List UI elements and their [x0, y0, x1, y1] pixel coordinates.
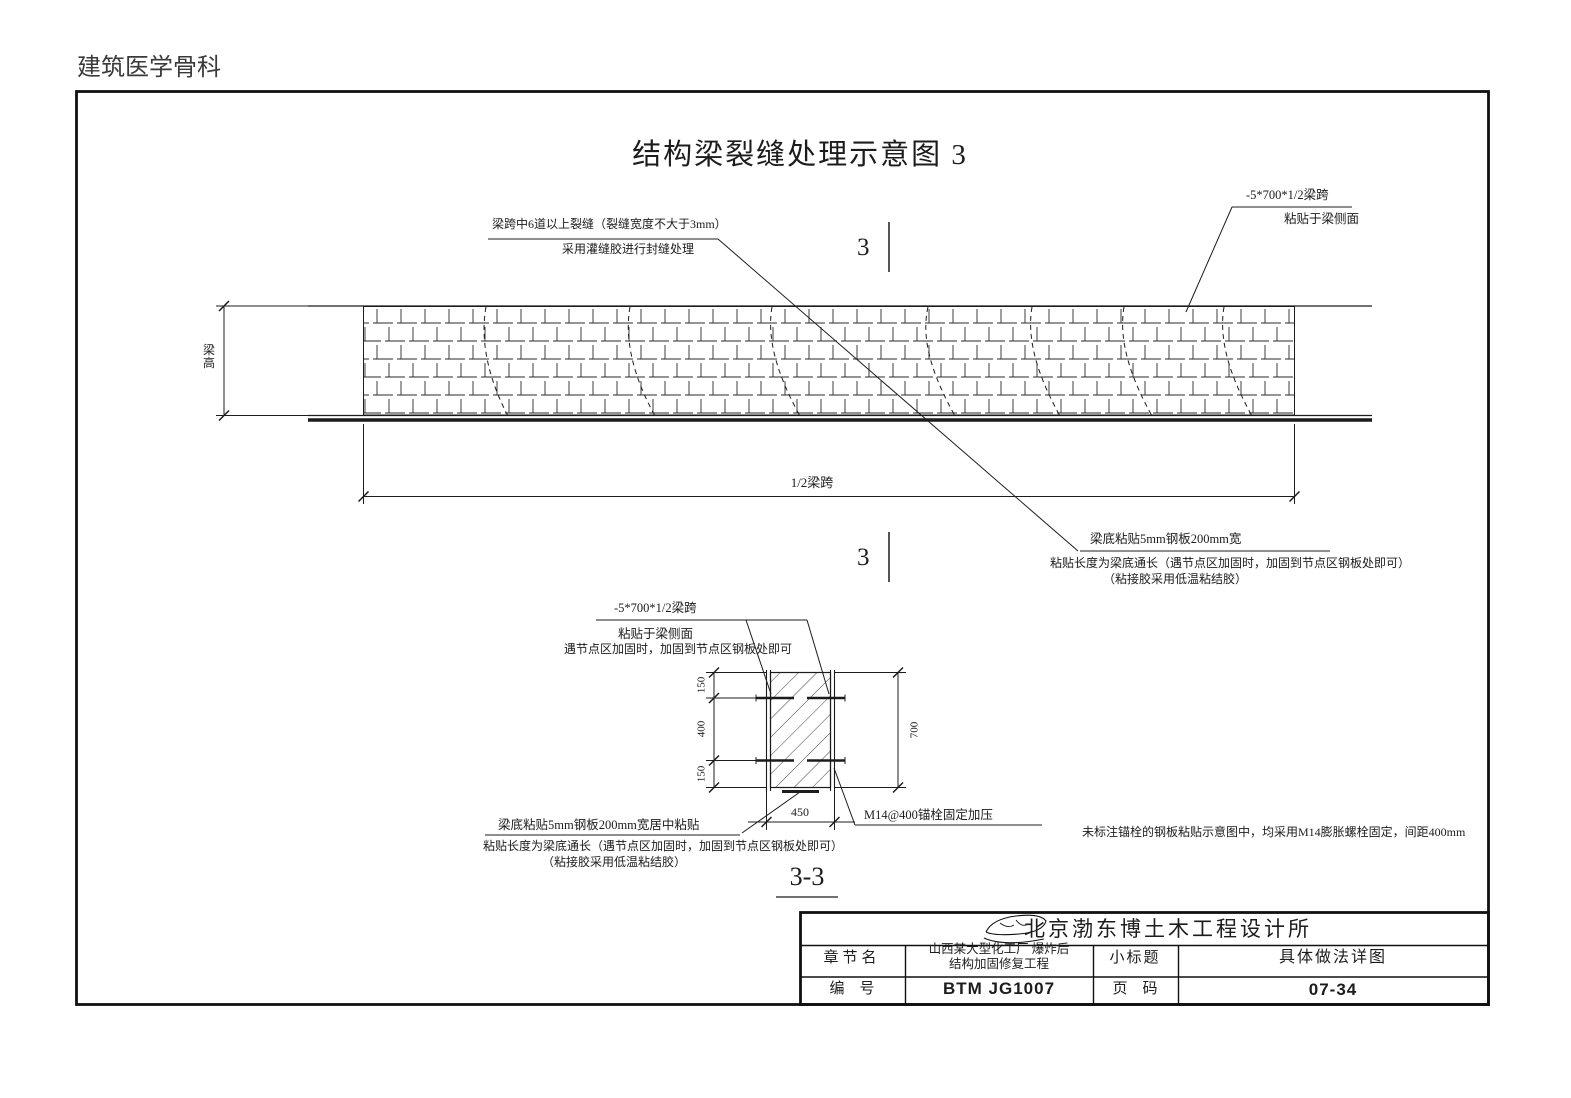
general-note: 未标注锚栓的钢板粘贴示意图中，均采用M14膨胀螺栓固定，间距400mm — [1082, 826, 1465, 840]
section-plate-note-line3: 遇节点区加固时，加固到节点区钢板处即可 — [564, 643, 792, 657]
project-name-line2: 结构加固修复工程 — [949, 957, 1049, 971]
leader-anchor-note — [834, 768, 855, 825]
bottom-plate-note-line1: 梁底粘贴5mm钢板200mm宽 — [1090, 532, 1241, 546]
subtitle-label: 小标题 — [1109, 950, 1160, 967]
dim-beam-height — [216, 301, 360, 421]
beam-grid-face — [364, 307, 1295, 416]
dim-right — [835, 668, 907, 793]
section-bottom-note-line3: （粘接胶采用低温粘结胶） — [542, 856, 686, 870]
anchor-note: M14@400锚栓固定加压 — [864, 808, 993, 822]
page-code: 07-34 — [1309, 980, 1357, 1000]
sheet-border — [77, 92, 1489, 1005]
section-bottom-note-line2: 粘贴长度为梁底通长（遇节点区加固时，加固到节点区钢板处即可） — [483, 840, 843, 854]
bottom-plate-note-line3: （粘接胶采用低温粘结胶） — [1103, 573, 1247, 587]
section-plate-note-line1: -5*700*1/2梁跨 — [614, 601, 697, 615]
leader-side-plate-note — [1186, 207, 1232, 312]
number-label: 编 号 — [829, 981, 874, 998]
page-label: 页 码 — [1112, 981, 1157, 998]
side-plate-note-line1: -5*700*1/2梁跨 — [1246, 188, 1329, 202]
side-plate-note-line2: 粘贴于梁侧面 — [1284, 212, 1359, 226]
section-mark-bottom: 3 — [857, 544, 870, 573]
section-label: 3-3 — [790, 862, 825, 892]
half-span-label: 1/2梁跨 — [791, 476, 834, 491]
dim-400: 400 — [696, 721, 709, 738]
dim-700: 700 — [909, 722, 922, 739]
project-name-line1: 山西某大型化工厂 爆炸后 — [929, 942, 1070, 956]
subtitle-value: 具体做法详图 — [1279, 949, 1387, 967]
beam-elevation — [216, 207, 1372, 582]
chapter-label: 章节名 — [823, 950, 880, 967]
dim-left — [706, 668, 766, 793]
dim-half-span — [359, 424, 1300, 504]
section-mark-top: 3 — [857, 234, 870, 263]
dim-150-top: 150 — [696, 677, 709, 694]
section-plate-note-line2: 粘贴于梁侧面 — [618, 627, 693, 641]
watermark: 建筑医学骨科 — [77, 55, 221, 83]
dim-450: 450 — [791, 806, 809, 820]
bottom-plate-note-line2: 粘贴长度为梁底通长（遇节点区加固时，加固到节点区钢板处即可） — [1050, 557, 1410, 571]
section-bottom-note-line1: 梁底粘贴5mm钢板200mm宽居中粘贴 — [498, 818, 699, 832]
drawing-number: BTM JG1007 — [943, 979, 1055, 999]
concrete-section — [771, 673, 831, 788]
beam-height-label: 梁高 — [203, 344, 217, 370]
company-name: 北京渤东博土木工程设计所 — [1024, 917, 1312, 941]
crack-note-line1: 梁跨中6道以上裂缝（裂缝宽度不大于3mm） — [492, 218, 727, 232]
crack-note-line2: 采用灌缝胶进行封缝处理 — [562, 243, 694, 257]
dim-150-bottom: 150 — [696, 766, 709, 783]
drawing-title: 结构梁裂缝处理示意图 3 — [632, 139, 968, 172]
drawing-sheet: 建筑医学骨科 结构梁裂缝处理示意图 3 3 3 梁高 1/2梁跨 梁跨中6道以上… — [0, 0, 1571, 1098]
